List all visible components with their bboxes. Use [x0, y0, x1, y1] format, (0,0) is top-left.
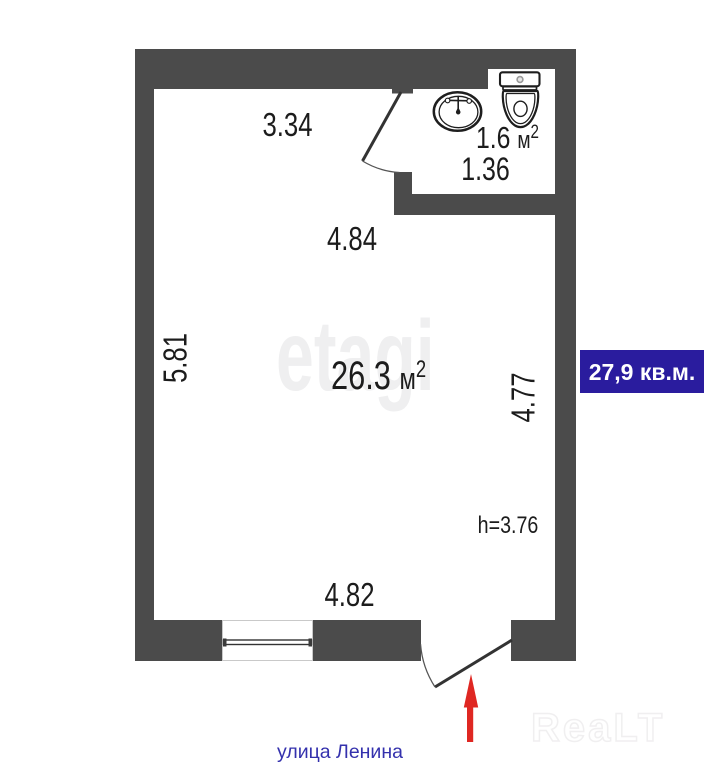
- svg-text:4.82: 4.82: [324, 577, 374, 614]
- svg-text:1.6 м2: 1.6 м2: [476, 120, 539, 154]
- svg-text:h=3.76: h=3.76: [478, 511, 539, 538]
- svg-text:4.77: 4.77: [506, 372, 543, 422]
- svg-text:3.34: 3.34: [262, 107, 312, 144]
- svg-text:1.36: 1.36: [461, 152, 510, 188]
- svg-text:27,9 кв.м.: 27,9 кв.м.: [589, 359, 696, 385]
- svg-text:4.84: 4.84: [327, 221, 377, 258]
- svg-text:5.81: 5.81: [158, 333, 195, 383]
- svg-text:улица Ленина: улица Ленина: [277, 741, 403, 763]
- svg-text:ReaLT: ReaLT: [531, 706, 665, 750]
